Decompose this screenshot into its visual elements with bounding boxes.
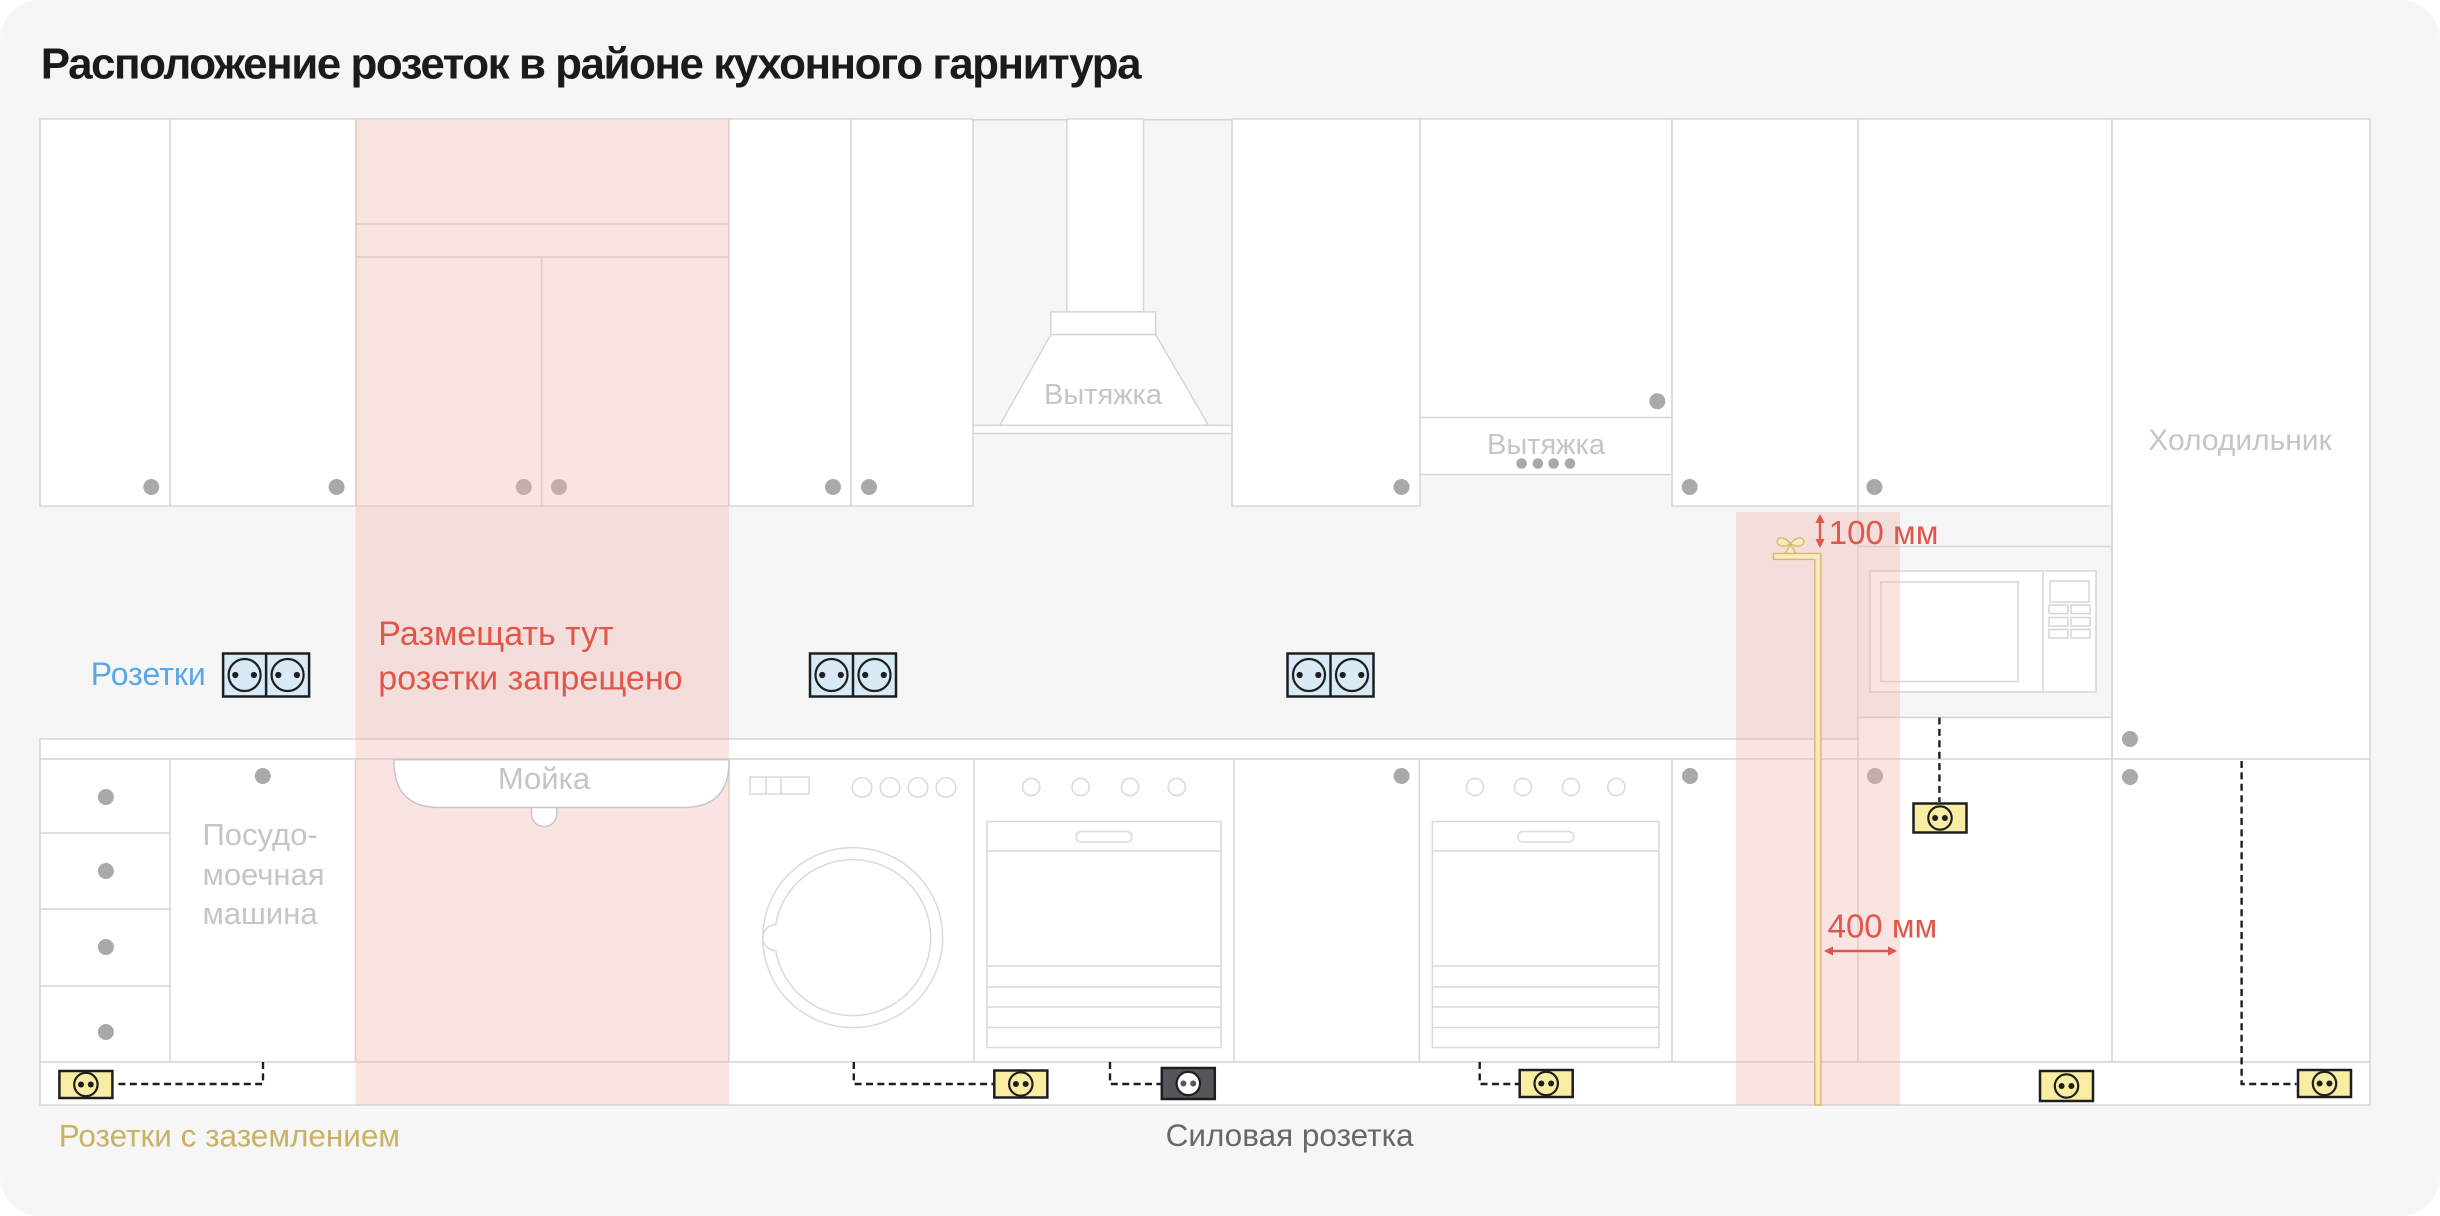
svg-text:Холодильник: Холодильник [2148, 424, 2332, 457]
svg-text:Мойка: Мойка [498, 761, 591, 796]
svg-text:Посудо-моечнаямашина: Посудо-моечнаямашина [203, 817, 325, 931]
svg-text:Расположение розеток в районе: Расположение розеток в районе кухонного … [41, 40, 1142, 89]
svg-text:Вытяжка: Вытяжка [1487, 429, 1606, 461]
svg-text:Силовая розетка: Силовая розетка [1166, 1117, 1414, 1153]
svg-text:Розетки: Розетки [91, 656, 206, 692]
svg-text:400 мм: 400 мм [1828, 908, 1938, 945]
svg-text:Розетки с заземлением: Розетки с заземлением [59, 1118, 400, 1154]
svg-text:100 мм: 100 мм [1829, 514, 1939, 551]
svg-text:Вытяжка: Вытяжка [1044, 379, 1163, 411]
